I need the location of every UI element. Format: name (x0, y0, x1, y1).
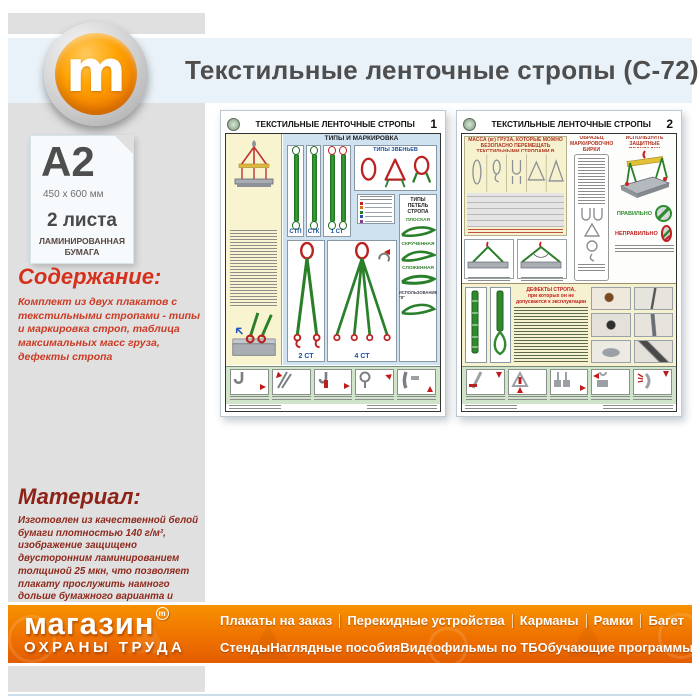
sling-label: 1 СТ (324, 229, 350, 235)
legend-item (360, 211, 392, 214)
nav-link-flip-systems[interactable]: Перекидные устройства (347, 613, 504, 628)
defect-photo (591, 287, 631, 310)
warning-panel (466, 369, 505, 402)
correct-row: ПРАВИЛЬНО (615, 205, 674, 222)
poster1-title: ТЕКСТИЛЬНЫЕ ЛЕНТОЧНЫЕ СТРОПЫ (243, 119, 427, 129)
text-lines (468, 229, 563, 233)
format-paper: ЛАМИНИРОВАННАЯ БУМАГА (37, 236, 127, 257)
legend-item (360, 206, 392, 209)
page-title: Текстильные ленточные стропы (С-72) (185, 37, 699, 103)
strap-glyph (330, 154, 335, 222)
nav-link-frames[interactable]: Рамки (594, 613, 634, 628)
defect-strap-panel (490, 287, 512, 363)
text-lines (578, 264, 605, 272)
hook-glyph (315, 370, 337, 390)
format-size: A2 (41, 138, 95, 186)
defect-strap-panels (465, 287, 511, 363)
poster-thumbnail-1[interactable]: ТЕКСТИЛЬНЫЕ ЛЕНТОЧНЫЕ СТРОПЫ 1 (220, 110, 446, 417)
format-sheets: 2 листа (31, 210, 133, 232)
nav-separator (339, 614, 340, 628)
types-heading: ТИПЫ И МАРКИРОВКА (283, 135, 440, 142)
correct-circle-icon (655, 205, 672, 222)
brand-name: магазинm (24, 607, 185, 641)
nav-separator (512, 614, 513, 628)
angle-example-panel (464, 239, 514, 279)
red-arrow (384, 249, 390, 255)
defect-photo (591, 313, 631, 336)
sling-label: СТП (288, 229, 303, 235)
poster-emblem-icon (463, 118, 476, 131)
text-lines (360, 196, 392, 200)
sling-box-stp: СТП (287, 145, 304, 237)
strap-glyph (294, 154, 299, 222)
defect-photos-grid (591, 287, 673, 363)
poster2-top-section: МАССА (кг) ГРУЗА, КОТОРЫЕ МОЖНО БЕЗОПАСН… (462, 134, 676, 283)
brand-subtitle: ОХРАНЫ ТРУДА (24, 639, 185, 656)
load-mass-table: МАССА (кг) ГРУЗА, КОТОРЫЕ МОЖНО БЕЗОПАСН… (464, 136, 567, 236)
warning-panel (397, 369, 436, 402)
poster-thumbnail-2[interactable]: ТЕКСТИЛЬНЫЕ ЛЕНТОЧНЫЕ СТРОПЫ 2 МАССА (кг… (456, 110, 682, 417)
text-lines (468, 277, 510, 281)
nav-link-training-programs[interactable]: Обучающие программы (538, 640, 692, 655)
pallet-sling-illustration (229, 138, 279, 198)
nav-separator (640, 614, 641, 628)
two-loads-glyph (551, 370, 573, 390)
defects-text-column: ДЕФЕКТЫ СТРОПА, при которых он не допуск… (514, 287, 588, 363)
incorrect-row: НЕПРАВИЛЬНО (615, 225, 674, 242)
text-lines (355, 396, 394, 402)
warning-panel (508, 369, 547, 402)
beam-sling-glyph (518, 240, 564, 272)
loop-types-box: ТИПЫ ПЕТЕЛЬ СТРОПА ПЛОСКАЯ СКРУЧЕННАЯ СЛ… (399, 194, 437, 362)
page: Текстильные ленточные стропы (С-72) m A2… (0, 0, 700, 700)
text-lines (272, 396, 311, 402)
poster2-warning-band (462, 366, 676, 404)
brand-name-text: магазин (24, 606, 155, 641)
legend-item (360, 202, 392, 205)
incorrect-label: НЕПРАВИЛЬНО (615, 231, 658, 237)
tag-heading: ОБРАЗЕЦ МАРКИРОВОЧНОЙ БИРКИ (570, 136, 613, 153)
text-lines (603, 405, 673, 411)
text-lines (578, 158, 605, 206)
defects-section: ДЕФЕКТЫ СТРОПА, при которых он не допуск… (462, 283, 676, 366)
strap-glyph (341, 154, 346, 222)
poster1-main-area: ТИПЫ И МАРКИРОВКА СТП СТК 1 СТ ТИПЫ ЗВЕН… (283, 134, 440, 365)
angle-example-panel (517, 239, 567, 279)
format-dimensions: 450 x 600 мм (43, 189, 103, 200)
legend-item (360, 215, 392, 218)
page-fold-corner (114, 135, 134, 155)
incorrect-circle-icon (661, 225, 672, 242)
format-card: A2 450 x 600 мм 2 листа ЛАМИНИРОВАННАЯ Б… (30, 135, 134, 264)
warning-panel (230, 369, 269, 402)
poster2-imprint (465, 405, 673, 411)
tag-shapes (577, 206, 607, 264)
site-logo-ball: m (55, 33, 137, 115)
text-lines (230, 230, 277, 308)
footer-bar: магазинm ОХРАНЫ ТРУДА Плакаты на заказ П… (8, 602, 692, 666)
slab-lift-illustration (617, 148, 673, 202)
poster2-body: МАССА (кг) ГРУЗА, КОТОРЫЕ МОЖНО БЕЗОПАСН… (461, 133, 677, 412)
strap-glyph (312, 154, 317, 222)
loop-glyph (400, 223, 436, 239)
loop-glyph (400, 271, 436, 287)
nav-link-visual-aids[interactable]: Наглядные пособия (270, 640, 400, 655)
warning-panel (314, 369, 353, 402)
defect-strap-panel (465, 287, 487, 363)
material-heading: Материал: (18, 484, 141, 510)
angle-examples (464, 239, 567, 279)
link-types-box: ТИПЫ ЗВЕНЬЕВ (354, 145, 437, 191)
nav-link-safety-videos[interactable]: Видеофильмы по ТБ (400, 640, 537, 655)
nav-link-stands[interactable]: Стенды (220, 640, 270, 655)
load-table-heading: МАССА (кг) ГРУЗА, КОТОРЫЕ МОЖНО БЕЗОПАСН… (465, 137, 566, 152)
text-lines (465, 405, 517, 411)
sling-scheme-glyphs (467, 154, 566, 192)
sling-box-2st: 2 СТ (287, 240, 325, 362)
link-types-heading: ТИПЫ ЗВЕНЬЕВ (355, 147, 436, 153)
warning-panel (272, 369, 311, 402)
sling-box-4st: 4 СТ (327, 240, 397, 362)
sling-box-1st: 1 СТ (323, 145, 351, 237)
link-glyph (356, 370, 378, 390)
poster2-titlebar: ТЕКСТИЛЬНЫЕ ЛЕНТОЧНЫЕ СТРОПЫ 2 (461, 115, 677, 133)
loop-label-use8: ИСПОЛЬЗОВАНИЕ "8" (399, 290, 438, 300)
four-leg-sling-glyph (330, 242, 394, 354)
poster1-warning-band (226, 366, 440, 404)
text-lines (591, 396, 630, 402)
text-lines (314, 396, 353, 402)
mass-values-grid (467, 193, 564, 227)
poster2-title: ТЕКСТИЛЬНЫЕ ЛЕНТОЧНЫЕ СТРОПЫ (479, 119, 663, 129)
nav-separator (586, 614, 587, 628)
site-logo: m (44, 22, 148, 126)
poster1-body: ТИПЫ И МАРКИРОВКА СТП СТК 1 СТ ТИПЫ ЗВЕН… (225, 133, 441, 412)
poster1-number: 1 (430, 117, 439, 131)
hooks-on-beam-illustration (228, 311, 280, 363)
loop-glyph (400, 247, 436, 263)
text-lines (397, 396, 436, 402)
warning-panel (550, 369, 589, 402)
text-lines (466, 396, 505, 402)
two-leg-sling-glyph (290, 242, 324, 354)
content-text: Комплект из двух плакатов с текстильными… (18, 296, 202, 364)
text-lines (615, 245, 674, 254)
loop-glyph (400, 300, 436, 316)
strap-defect-glyph (466, 288, 484, 358)
poster1-titlebar: ТЕКСТИЛЬНЫЕ ЛЕНТОЧНЫЕ СТРОПЫ 1 (225, 115, 441, 133)
text-lines (230, 396, 269, 402)
loop-types-heading: ТИПЫ ПЕТЕЛЬ СТРОПА (400, 197, 436, 215)
text-lines (521, 277, 563, 281)
poster1-left-column (226, 134, 282, 365)
sling-label: 4 СТ (328, 353, 396, 360)
legend-item (360, 220, 392, 223)
text-lines (367, 405, 437, 411)
poster-emblem-icon (227, 118, 240, 131)
footer-nav-row2: Стенды Наглядные пособия Видеофильмы по … (220, 640, 684, 655)
content-heading: Содержание: (18, 264, 161, 290)
protective-pads-column: ИСПОЛЬЗУЙТЕ ЗАЩИТНЫЕ ПОДКЛАДКИ ПРАВИЛЬНО (615, 136, 674, 281)
sling-label: СТК (307, 229, 320, 235)
poster2-number: 2 (666, 117, 675, 131)
spray-strap-glyph (634, 370, 656, 390)
footer-nav-row1: Плакаты на заказ Перекидные устройства К… (220, 613, 684, 628)
poster1-imprint (229, 405, 437, 411)
text-lines (508, 396, 547, 402)
text-lines (550, 396, 589, 402)
correct-label: ПРАВИЛЬНО (617, 211, 652, 217)
page-bottom-border (8, 694, 692, 696)
footer-nav: Плакаты на заказ Перекидные устройства К… (220, 607, 684, 661)
strap-loop-glyph (491, 288, 509, 358)
marking-tag (574, 154, 609, 281)
text-lines (229, 405, 281, 411)
footer-brand-logo[interactable]: магазинm ОХРАНЫ ТРУДА (24, 607, 185, 656)
nav-link-baguette[interactable]: Багет (649, 613, 684, 628)
text-lines (514, 307, 588, 363)
strap-edge-glyph (398, 370, 420, 390)
brand-trademark-icon: m (156, 607, 169, 620)
beam-sling-glyph (465, 240, 511, 272)
defect-photo (634, 313, 674, 336)
beam-glyph (467, 370, 489, 390)
defect-photo (634, 287, 674, 310)
warning-panel (355, 369, 394, 402)
pads-heading: ИСПОЛЬЗУЙТЕ ЗАЩИТНЫЕ ПОДКЛАДКИ (615, 136, 674, 148)
defects-heading-line2: при которых он не допускается к эксплуат… (514, 293, 588, 305)
defect-photo (591, 340, 631, 363)
logo-m-icon: m (66, 42, 126, 100)
link-types-glyphs (355, 154, 439, 190)
nav-link-posters-on-order[interactable]: Плакаты на заказ (220, 613, 332, 628)
marking-tag-column: ОБРАЗЕЦ МАРКИРОВОЧНОЙ БИРКИ (570, 136, 613, 281)
warning-panel (591, 369, 630, 402)
defect-photo (634, 340, 674, 363)
text-lines (633, 396, 672, 402)
sling-box-stk: СТК (306, 145, 321, 237)
materials-legend-box (357, 194, 395, 224)
warning-panel (633, 369, 672, 402)
hook-glyph (231, 370, 253, 390)
nav-link-pockets[interactable]: Карманы (520, 613, 579, 628)
sling-label: 2 СТ (288, 353, 324, 360)
